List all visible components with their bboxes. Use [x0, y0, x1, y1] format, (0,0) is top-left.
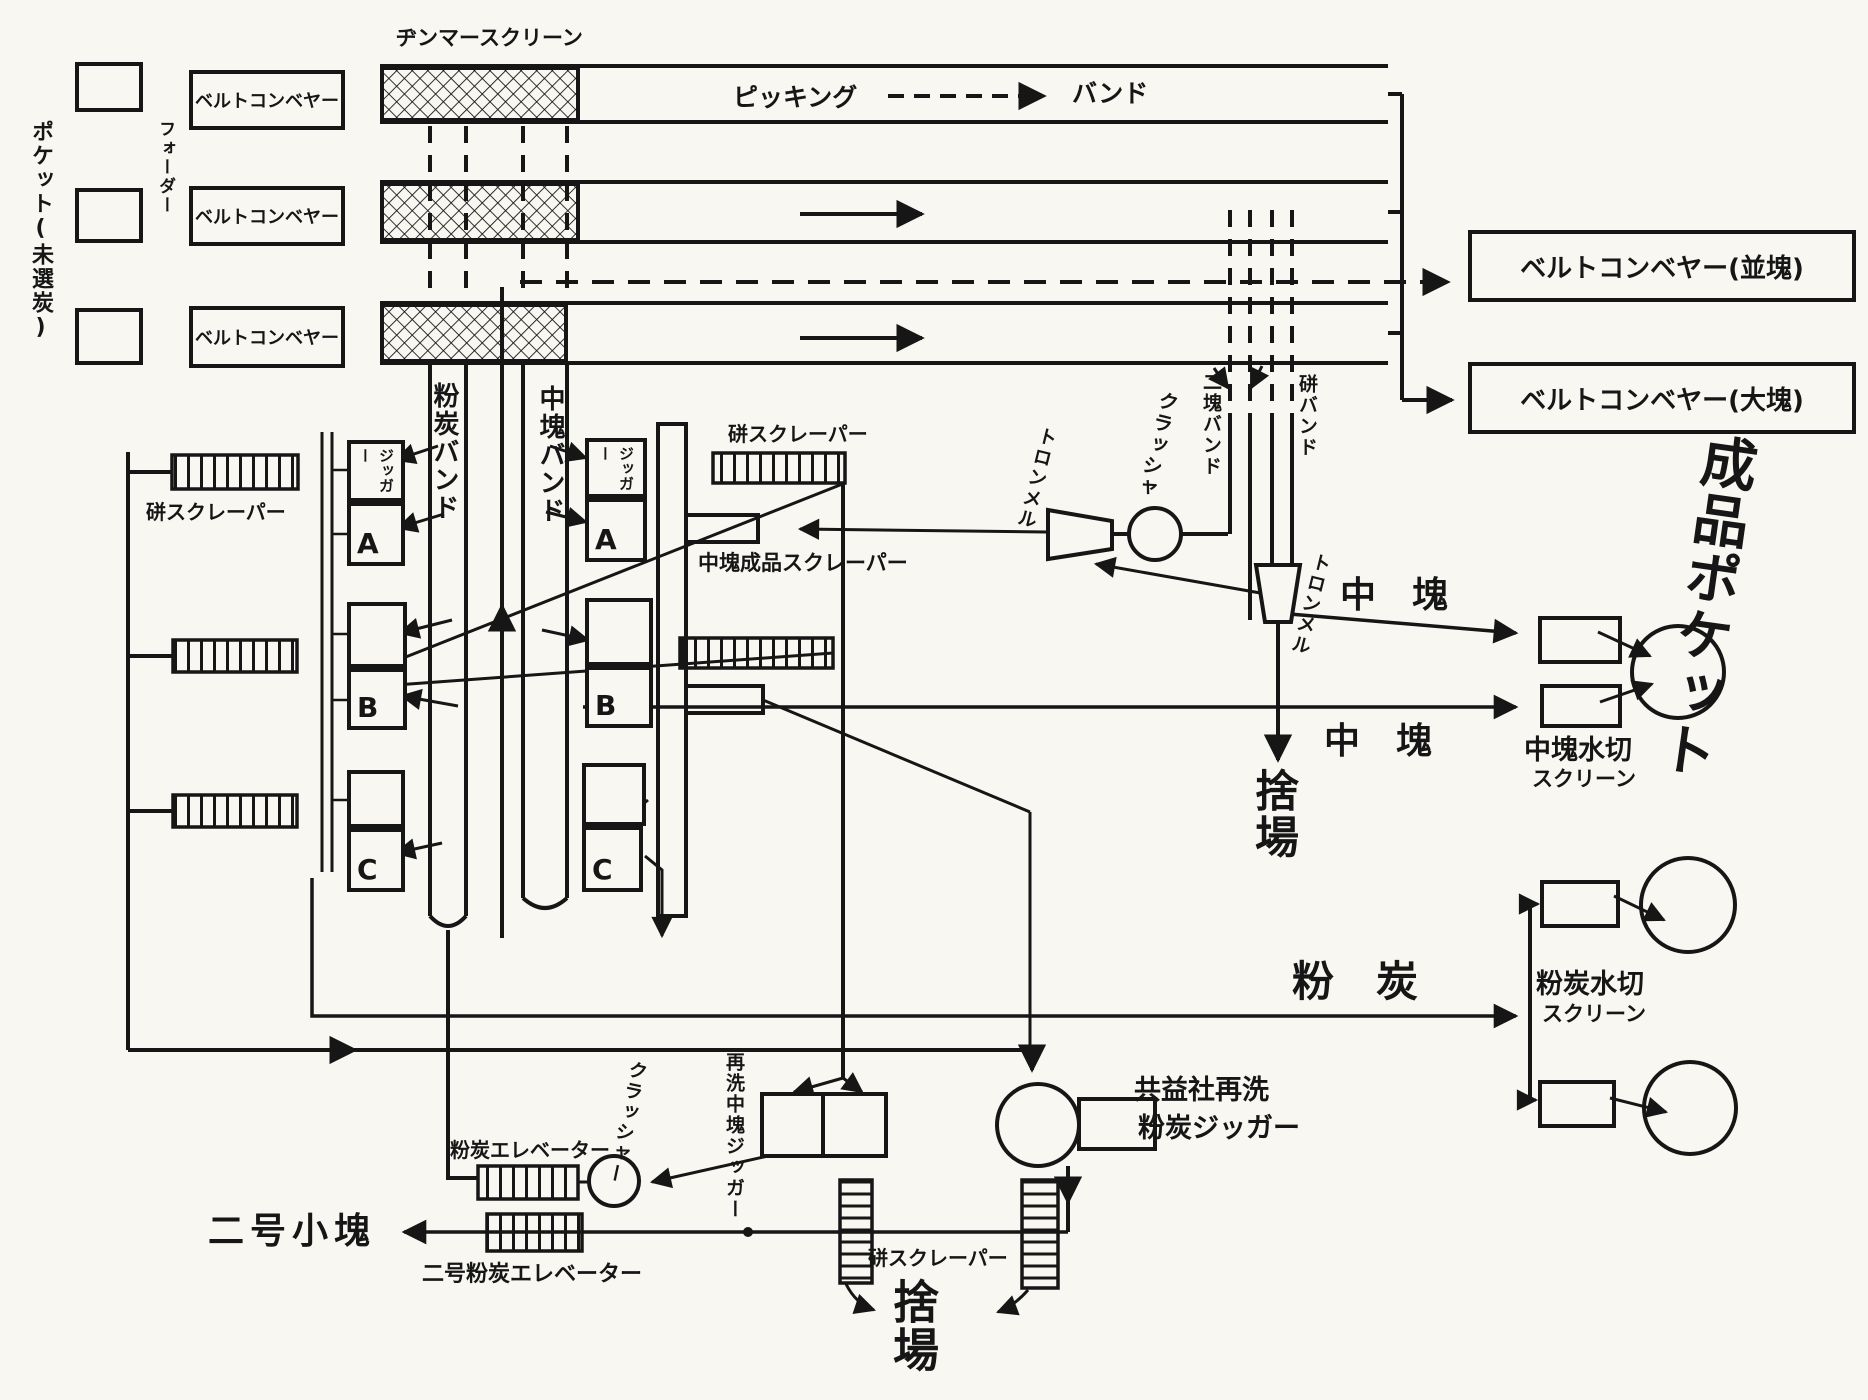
jigger-left-label: ジッガー [355, 448, 397, 498]
no2-fine-elevator-label: 二号粉炭エレベーター [422, 1256, 642, 1288]
refuse-scraper-left-label: 硑スクレーパー [146, 496, 286, 525]
jimmer-screen-label: ヂンマースクリーン [396, 22, 583, 52]
refuse-scraper-bottom-label: 硑スクレーパー [868, 1242, 1008, 1271]
jigger-right-cell-a: A [585, 498, 647, 562]
pocket-box-3 [75, 308, 143, 365]
medium-dewater-label: 中塊水切 [1524, 728, 1632, 767]
jigger-right-cell-c-upper [582, 763, 646, 826]
jigger-left-cell-b: B [347, 668, 407, 730]
feeder-label: フォーダー [153, 120, 178, 260]
medium-lump-upper-label: 中 塊 [1340, 566, 1448, 618]
jigger-left-cell-b-upper [347, 602, 407, 668]
jigger-right-label: ジッガー [595, 446, 637, 494]
dump-bottom-label: 捨場 [880, 1278, 946, 1400]
jigger-left-cell-c-upper [347, 770, 405, 828]
jigger-right-cell-c: C [582, 826, 643, 892]
fine-coal-label: 粉 炭 [1292, 948, 1418, 1009]
kyoeki-label-line2: 粉炭ジッガー [1138, 1106, 1300, 1145]
picking-label: ピッキング [733, 78, 857, 114]
belt-conveyor-large-box: ベルトコンベヤー(大塊) [1468, 362, 1856, 434]
jigger-left-cell-a: A [347, 502, 405, 566]
jigger-right-cell-b-upper [585, 598, 653, 666]
medium-lump-lower-label: 中 塊 [1324, 712, 1432, 764]
jigger-left-head: ジッガー [347, 440, 405, 502]
rewash-medium-jigger-label: 再洗中塊ジッガー [721, 1052, 748, 1212]
belt-conveyor-box-2: ベルトコンベヤー [189, 186, 345, 246]
no2-small-lump-label: 二号小塊 [208, 1202, 376, 1254]
belt-conveyor-medium-box: ベルトコンベヤー(並塊) [1468, 230, 1856, 302]
pocket-raw-coal-label: ポケット(未選炭) [24, 120, 56, 410]
kyoeki-label-line1: 共益社再洗 [1134, 1068, 1269, 1107]
belt-conveyor-box-3: ベルトコンベヤー [189, 306, 345, 368]
fine-elevator-label: 粉炭エレベーター [450, 1134, 610, 1163]
jigger-right-cell-b: B [585, 666, 653, 728]
medium-dewater-screen-label: スクリーン [1532, 763, 1636, 793]
medium-lump-band-label: 中塊バンド [532, 385, 569, 695]
medium-product-scraper-label: 中塊成品スクレーパー [698, 547, 908, 577]
dump-mid-label: 捨場 [1240, 768, 1304, 888]
flow-diagram: ポケット(未選炭) フォーダー ベルトコンベヤー ベルトコンベヤー ベルトコンベ… [0, 0, 1868, 1400]
refuse-scraper-mid-label: 硑スクレーパー [728, 418, 868, 447]
refuse-band-label: 硑バンド [1294, 374, 1321, 474]
fine-coal-band-label: 粉炭バンド [426, 382, 463, 642]
two-lump-band-label: 二塊バンド [1198, 372, 1225, 492]
jigger-right-head: ジッガー [585, 438, 647, 498]
belt-conveyor-box-1: ベルトコンベヤー [189, 70, 345, 130]
jigger-left-cell-c: C [347, 828, 405, 892]
pocket-box-2 [75, 188, 143, 243]
pocket-box-1 [75, 62, 143, 112]
band-label: バンド [1072, 74, 1148, 110]
